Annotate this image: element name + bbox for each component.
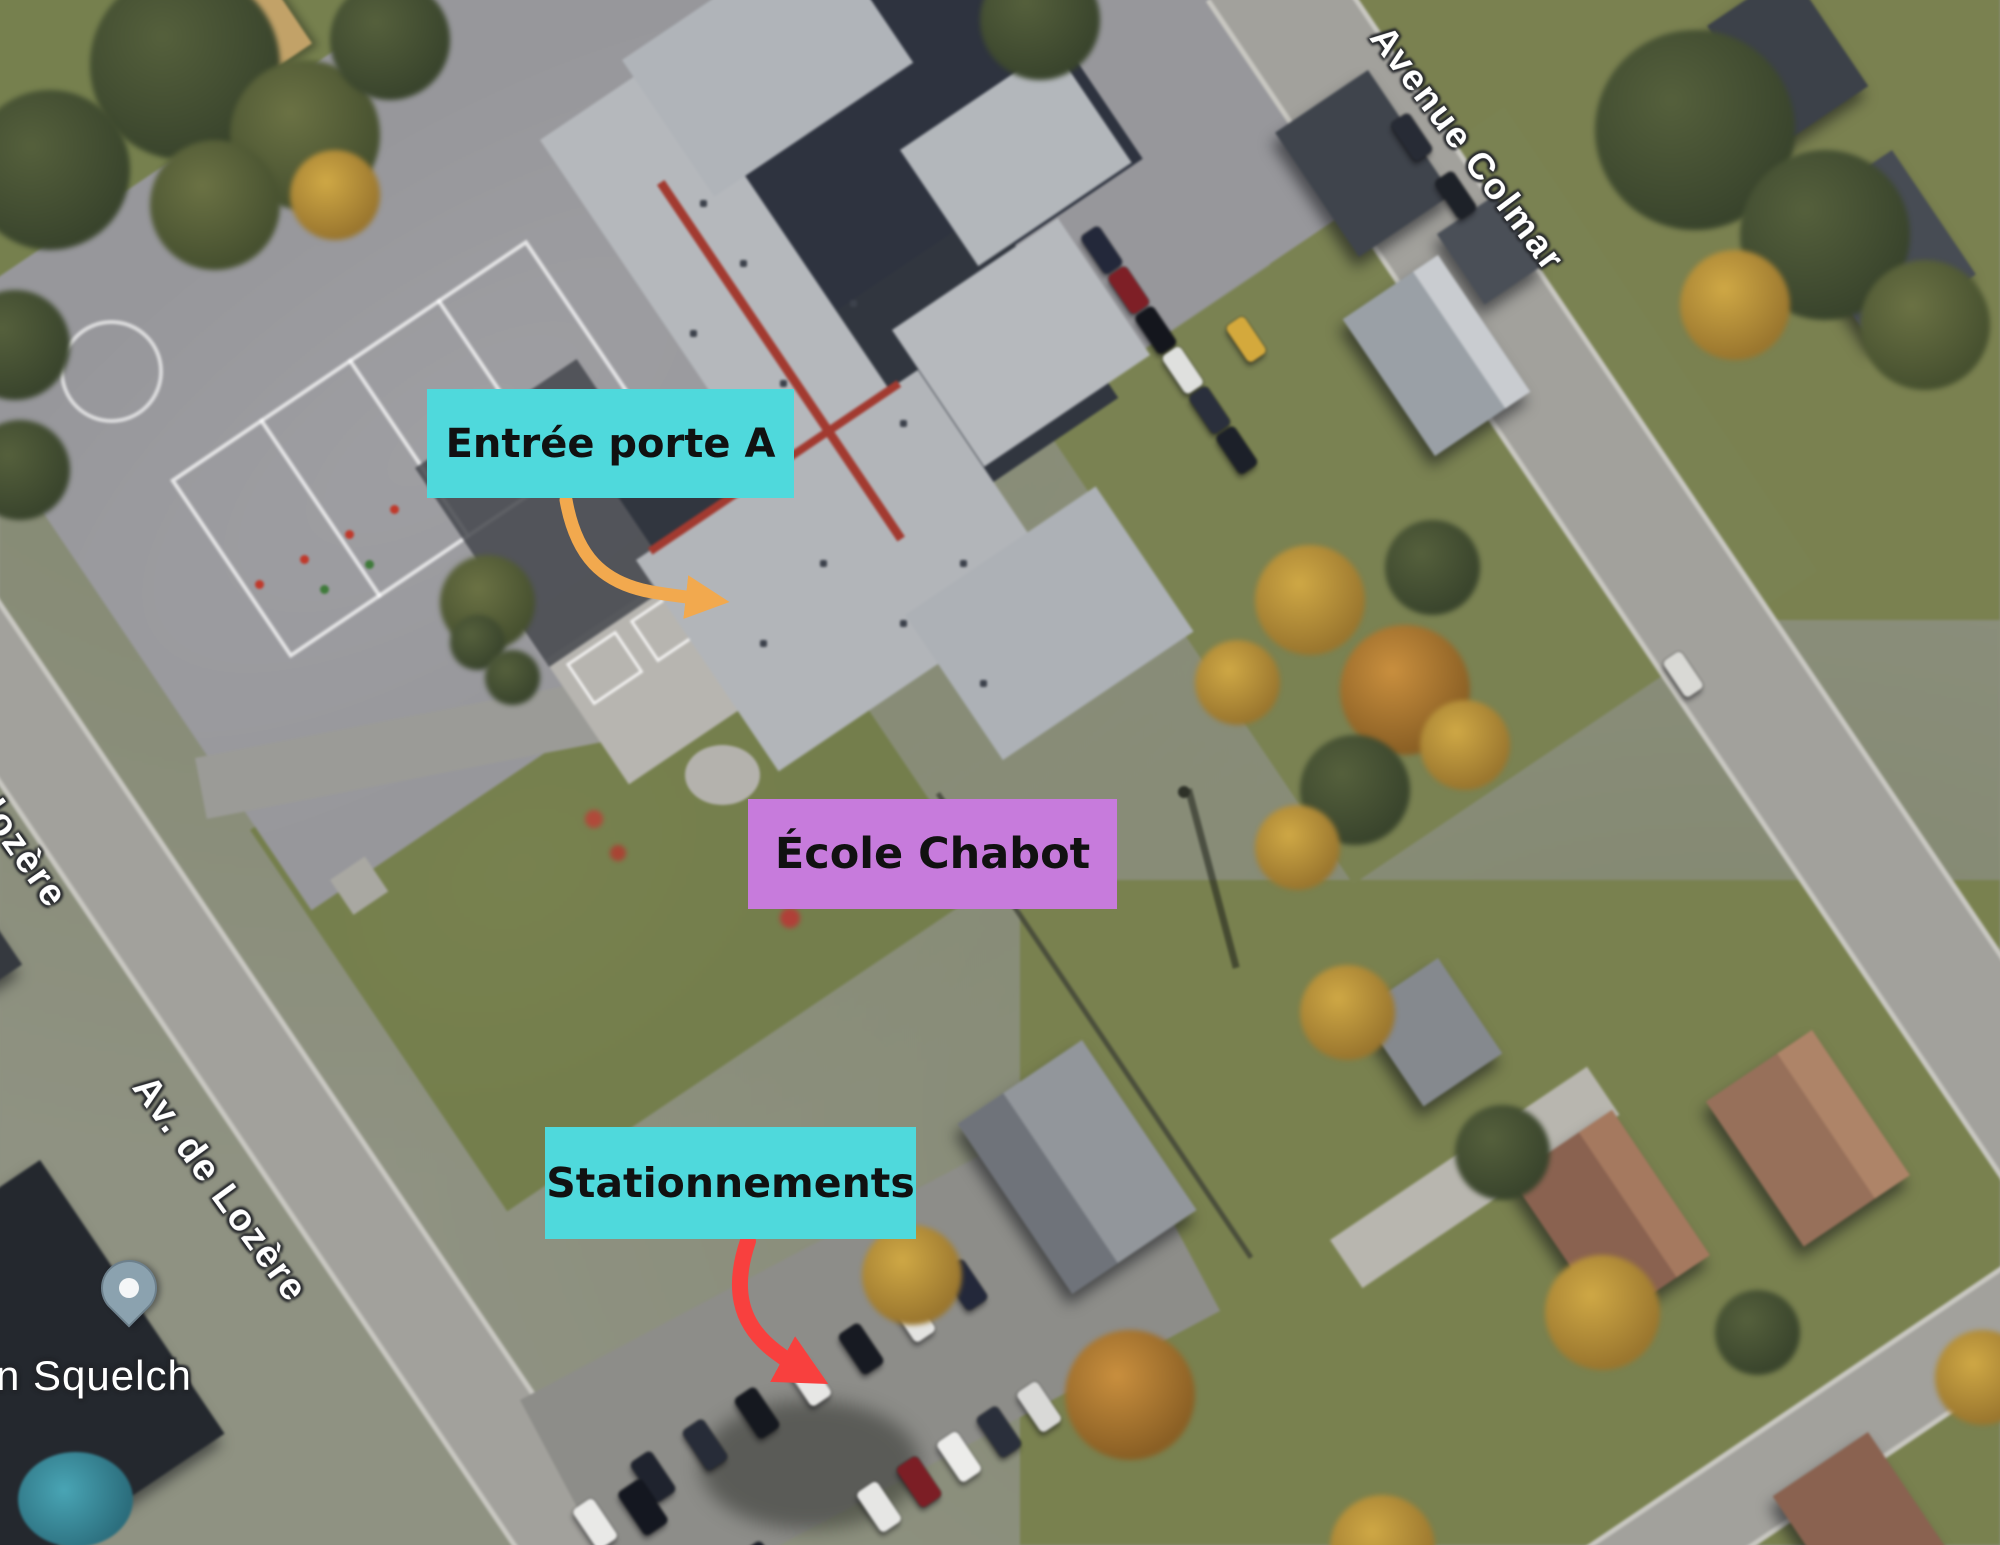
map-canvas[interactable]: Avenue Colmar lozère Av. de Lozère n Squ… xyxy=(0,0,2000,1545)
tree xyxy=(1300,965,1395,1060)
tree xyxy=(1195,640,1280,725)
tree xyxy=(862,1225,962,1325)
roof-vent xyxy=(900,420,907,427)
roof-vent xyxy=(900,620,907,627)
tree xyxy=(1545,1255,1660,1370)
roof-vent xyxy=(980,680,987,687)
tree xyxy=(1680,250,1790,360)
court-marking-dot xyxy=(255,580,264,589)
tree xyxy=(1715,1290,1800,1375)
utility-pole xyxy=(1178,786,1190,798)
tree xyxy=(1455,1105,1550,1200)
red-shrub xyxy=(610,845,626,861)
basketball-court-circle xyxy=(60,320,163,423)
round-pad xyxy=(685,745,760,805)
red-shrub xyxy=(585,810,603,828)
satellite-imagery xyxy=(0,0,2000,1545)
roof-vent xyxy=(780,380,787,387)
court-marking-dot xyxy=(345,530,354,539)
tree xyxy=(1385,520,1480,615)
place-label-squelch: n Squelch xyxy=(0,1352,192,1400)
court-marking-dot xyxy=(365,560,374,569)
roof-vent xyxy=(690,330,697,337)
roof-vent xyxy=(700,200,707,207)
tree xyxy=(485,650,540,705)
tree xyxy=(1255,805,1340,890)
tree xyxy=(1065,1330,1195,1460)
roof-vent xyxy=(740,260,747,267)
roof-vent xyxy=(760,640,767,647)
tree xyxy=(1420,700,1510,790)
tree xyxy=(290,150,380,240)
label-stationnements: Stationnements xyxy=(545,1127,916,1239)
label-ecole-chabot: École Chabot xyxy=(748,799,1117,909)
map-pin[interactable] xyxy=(94,1254,164,1346)
court-marking-dot xyxy=(300,555,309,564)
red-shrub xyxy=(780,908,800,928)
tree xyxy=(1860,260,1990,390)
roof-vent xyxy=(820,560,827,567)
map-pin-hole xyxy=(119,1278,139,1298)
swimming-pool xyxy=(18,1452,133,1545)
tree xyxy=(150,140,280,270)
court-marking-dot xyxy=(390,505,399,514)
roof-vent xyxy=(960,560,967,567)
roof-vent xyxy=(850,300,857,307)
tree xyxy=(1255,545,1365,655)
court-marking-dot xyxy=(320,585,329,594)
label-entrance-porte-a: Entrée porte A xyxy=(427,389,794,498)
